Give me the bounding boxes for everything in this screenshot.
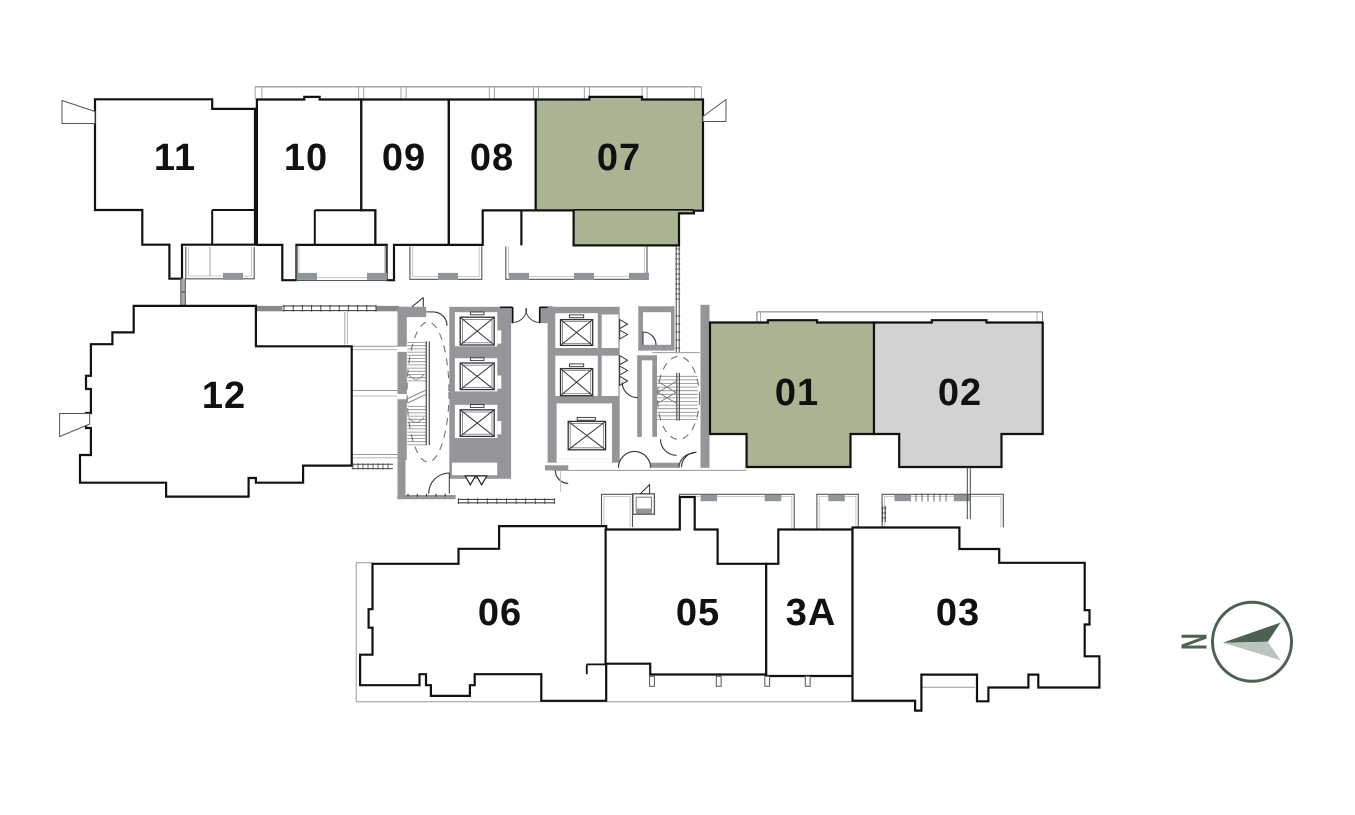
svg-text:3A: 3A (786, 592, 837, 634)
svg-text:01: 01 (775, 372, 819, 414)
svg-text:10: 10 (284, 137, 328, 179)
svg-text:11: 11 (154, 137, 196, 179)
svg-text:07: 07 (597, 137, 641, 179)
svg-text:08: 08 (470, 137, 514, 179)
svg-text:06: 06 (478, 592, 522, 634)
svg-text:05: 05 (676, 592, 720, 634)
svg-text:09: 09 (382, 137, 426, 179)
svg-text:N: N (1174, 633, 1215, 651)
svg-text:03: 03 (936, 592, 980, 634)
svg-text:12: 12 (202, 375, 246, 417)
svg-text:02: 02 (938, 372, 982, 414)
